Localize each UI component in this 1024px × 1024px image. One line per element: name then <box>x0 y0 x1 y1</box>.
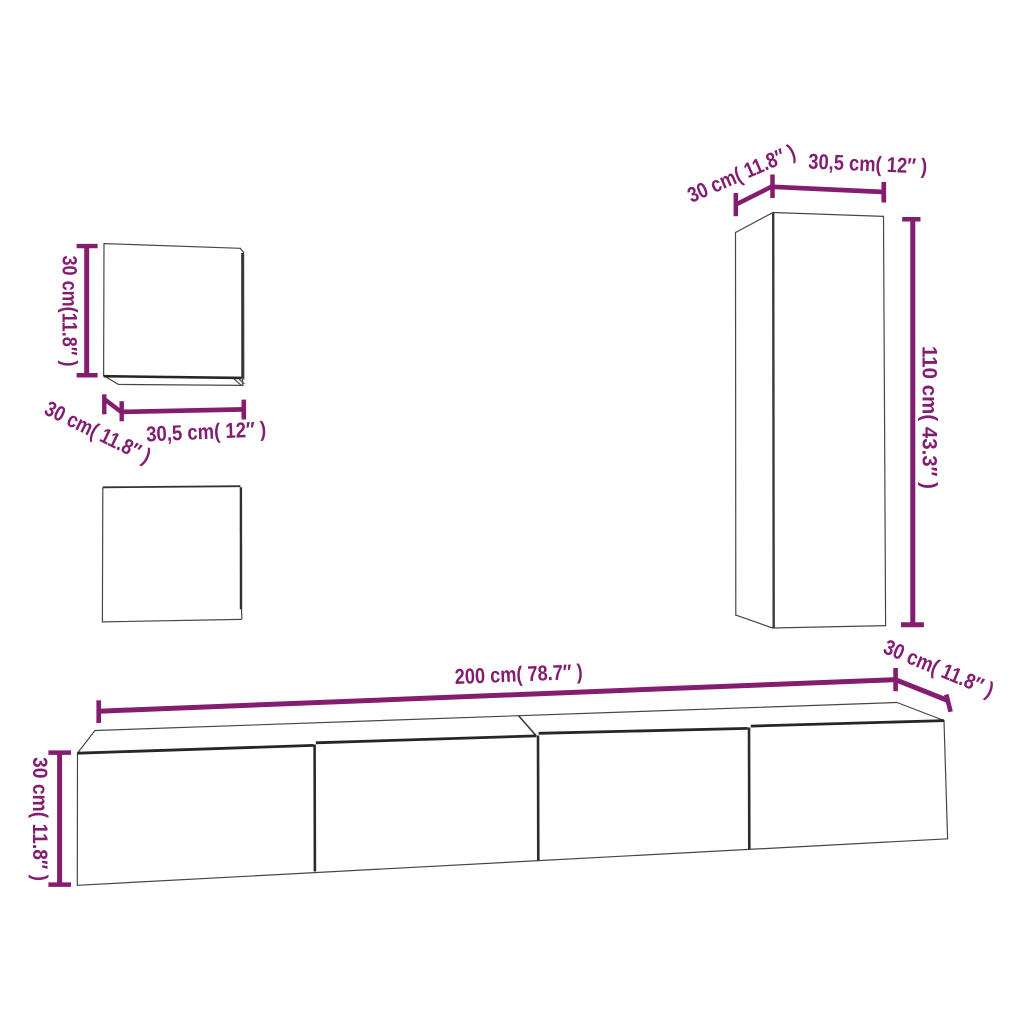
svg-text:30 cm(11.8″ ): 30 cm(11.8″ ) <box>58 256 82 367</box>
svg-text:30 cm( 11.8″ ): 30 cm( 11.8″ ) <box>28 757 52 881</box>
svg-text:200 cm( 78.7″ ): 200 cm( 78.7″ ) <box>454 660 583 689</box>
svg-text:110 cm( 43.3″ ): 110 cm( 43.3″ ) <box>918 346 942 489</box>
